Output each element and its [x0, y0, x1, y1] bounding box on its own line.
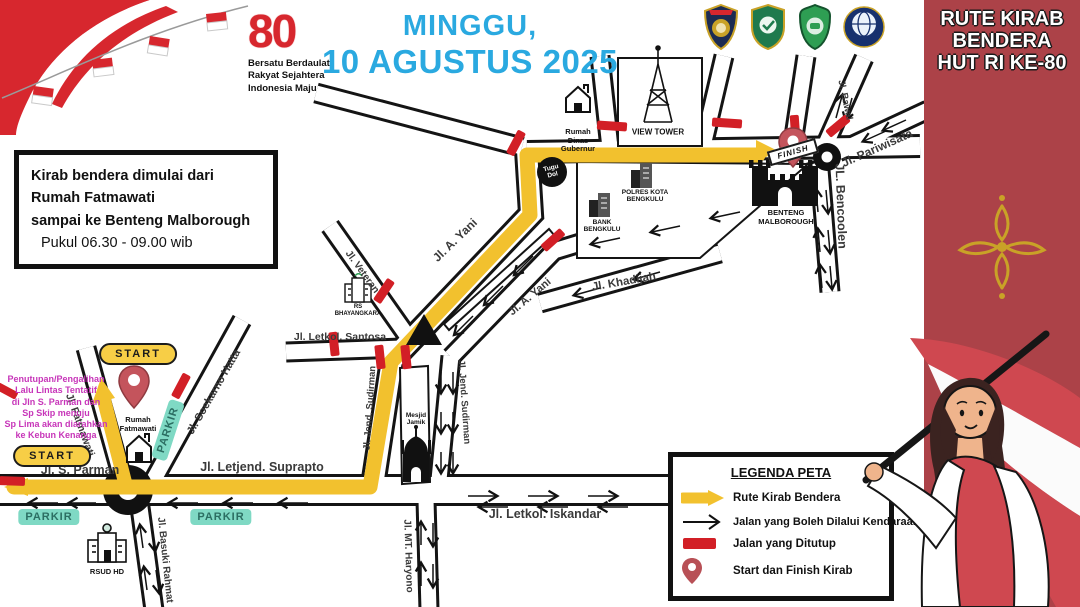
kirab-route-poster: Jl. S. Parman Jl. Letjend. Suprapto Jl. …	[0, 0, 1080, 607]
poi-label-benteng: BENTENGMALBOROUGH	[758, 209, 813, 226]
poi-label-polres: POLRES KOTABENGKULU	[622, 189, 668, 204]
bunting-flag	[92, 58, 114, 77]
closed-road-bar-icon	[681, 537, 725, 550]
info-line-2: Rumah Fatmawati	[31, 187, 263, 209]
gold-ornament	[952, 192, 1052, 302]
bunting-flag	[147, 36, 169, 56]
parkir-badge-west: PARKIR	[18, 509, 79, 525]
road-label-suprapto: Jl. Letjend. Suprapto	[200, 460, 324, 474]
poi-label-view-tower: VIEW TOWER	[632, 127, 684, 136]
info-line-1: Kirab bendera dimulai dari	[31, 165, 263, 187]
info-line-3: sampai ke Benteng Malborough	[31, 210, 263, 232]
poi-label-rsud: RSUD HD	[90, 568, 124, 577]
start-pin-icon	[119, 366, 149, 408]
info-time: Pukul 06.30 - 09.00 wib	[31, 232, 263, 255]
poi-label-rumah-fatmawati: RumahFatmawati	[120, 416, 157, 433]
kota-bengkulu-crest	[794, 3, 836, 51]
poi-label-bank-bengkulu: BANKBENGKULU	[584, 219, 621, 234]
event-date-title: MINGGU, 10 AGUSTUS 2025	[320, 10, 620, 81]
road-label-iskandar: Jl. Letkol. Iskandar	[489, 507, 602, 521]
route-arrow-icon	[681, 489, 725, 507]
start-badge-rumah-fatmawati: START	[99, 343, 177, 365]
start-finish-pin-icon	[681, 557, 725, 585]
provinsi-bengkulu-crest	[747, 3, 789, 51]
route-info-box: Kirab bendera dimulai dari Rumah Fatmawa…	[14, 150, 278, 269]
poi-label-rumah-dinas: RumahDinasGubernur	[561, 128, 595, 154]
road-label-santosa: Jl. Letkol. Santosa	[294, 331, 386, 343]
traffic-closure-notice: Penutupan/PengalihanLalu Lintas Tentatif…	[0, 374, 112, 442]
rumah-dinas-house-icon	[566, 85, 590, 112]
bunting-flag	[206, 12, 228, 31]
polri-shield-crest	[700, 3, 742, 51]
poi-label-mesjid-jamik: MesjidJamik	[406, 412, 426, 427]
flag-bunting-decoration	[0, 0, 260, 135]
rumah-fatmawati-house-icon	[127, 434, 151, 462]
bunting-flag	[32, 86, 54, 106]
poster-title: RUTE KIRAB BENDERA HUT RI KE-80	[924, 8, 1080, 74]
rsud-building-icon	[88, 524, 126, 562]
parkir-badge-east: PARKIR	[190, 509, 251, 525]
open-road-arrow-icon	[681, 514, 725, 530]
institution-crests	[700, 3, 887, 51]
woman-with-flag-illustration	[850, 320, 1080, 607]
kemenhub-globe-crest	[841, 3, 887, 51]
road-label-bencoolen: JL. Bencoolen	[833, 163, 850, 249]
start-badge-s-parman: START	[13, 445, 91, 467]
poi-label-bhayangkara: RSBHAYANGKARA	[335, 304, 382, 318]
hand	[865, 463, 883, 481]
